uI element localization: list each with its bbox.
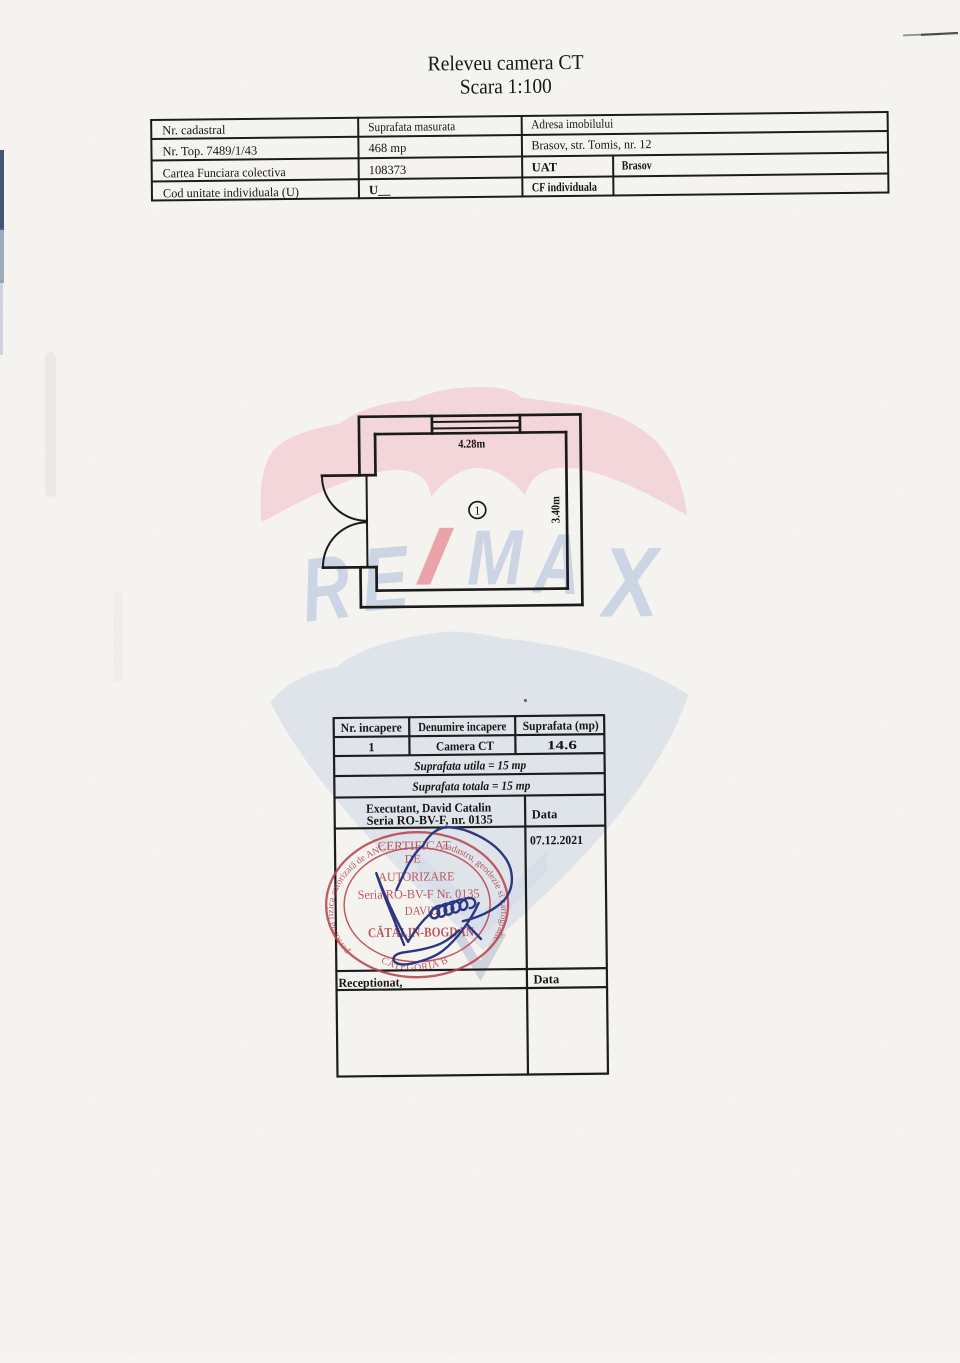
svg-text:108373: 108373 xyxy=(369,163,407,177)
svg-text:Denumire incapere: Denumire incapere xyxy=(418,719,507,734)
svg-text:Cartea Funciara colectiva: Cartea Funciara colectiva xyxy=(163,165,287,180)
svg-text:Data: Data xyxy=(533,972,560,986)
svg-text:U__: U__ xyxy=(369,183,391,197)
svg-text:Nr. incapere: Nr. incapere xyxy=(341,720,403,735)
svg-text:Cod unitate individuala (U): Cod unitate individuala (U) xyxy=(163,185,299,200)
svg-text:468 mp: 468 mp xyxy=(368,141,406,155)
svg-text:Data: Data xyxy=(532,807,559,821)
svg-text:Receptionat,: Receptionat, xyxy=(338,975,402,990)
svg-text:Seria RO-BV-F, nr. 0135: Seria RO-BV-F, nr. 0135 xyxy=(367,812,493,827)
svg-text:07.12.2021: 07.12.2021 xyxy=(530,833,583,848)
svg-text:AUTORIZARE: AUTORIZARE xyxy=(378,869,454,884)
svg-text:CF individuala: CF individuala xyxy=(532,180,598,195)
svg-text:A: A xyxy=(531,515,582,613)
svg-text:DAVID: DAVID xyxy=(405,903,439,917)
svg-text:UAT: UAT xyxy=(532,160,558,174)
svg-text:Scara 1:100: Scara 1:100 xyxy=(460,74,552,99)
svg-text:Releveu camera CT: Releveu camera CT xyxy=(427,50,583,76)
svg-text:Suprafata utila = 15 mp: Suprafata utila = 15 mp xyxy=(414,758,526,773)
svg-text:Nr. cadastral: Nr. cadastral xyxy=(162,123,226,138)
svg-text:3.40m: 3.40m xyxy=(548,496,562,523)
svg-text:Suprafata (mp): Suprafata (mp) xyxy=(523,718,599,733)
svg-text:Nr. Top. 7489/1/43: Nr. Top. 7489/1/43 xyxy=(162,143,257,158)
svg-text:Adresa imobilului: Adresa imobilului xyxy=(531,117,614,132)
svg-text:1: 1 xyxy=(368,740,374,754)
svg-text:4.28m: 4.28m xyxy=(458,436,485,450)
svg-text:14.6: 14.6 xyxy=(547,738,577,752)
svg-text:1: 1 xyxy=(474,503,480,517)
svg-text:X: X xyxy=(597,526,663,638)
svg-text:Suprafata masurata: Suprafata masurata xyxy=(368,119,456,134)
svg-text:Camera CT: Camera CT xyxy=(436,739,495,754)
svg-text:Suprafata totala = 15 mp: Suprafata totala = 15 mp xyxy=(412,778,530,793)
svg-text:Brasov, str. Tomis, nr. 12: Brasov, str. Tomis, nr. 12 xyxy=(531,137,651,152)
svg-text:Brasov: Brasov xyxy=(622,158,653,172)
